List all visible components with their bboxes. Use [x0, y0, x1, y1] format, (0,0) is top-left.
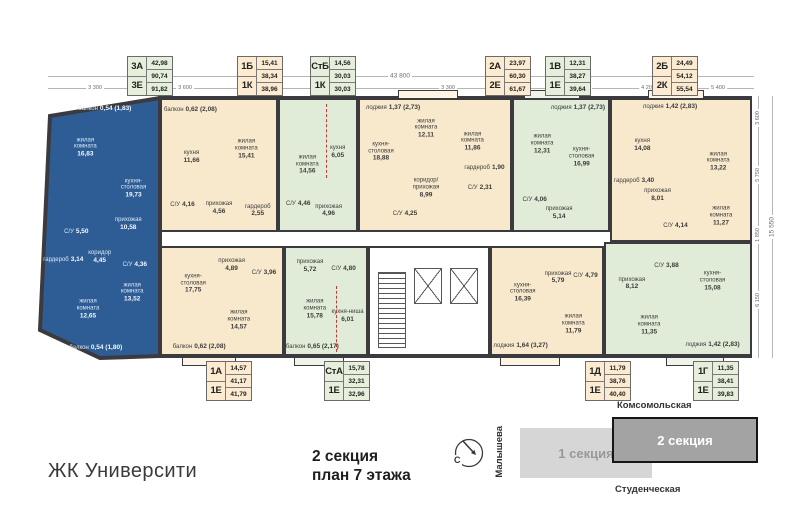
apartment-area-value: 41,79: [226, 387, 251, 400]
room-label: жилая комната11,35: [631, 315, 667, 336]
room-name: С/У: [573, 273, 583, 280]
room-area: 17,75: [185, 287, 201, 294]
apartment-area-value: 24,49: [672, 57, 697, 69]
room-area: 11,86: [465, 145, 481, 152]
room-area: 14,56: [299, 168, 315, 175]
room-name: прихожая: [115, 217, 142, 224]
room-label: С/У3,96: [252, 270, 276, 278]
elevator-icon: [414, 268, 442, 304]
apartment-area-value: 32,31: [344, 374, 369, 387]
apartment-type-label: СтА: [325, 362, 343, 381]
room-label: прихожая5,79: [545, 271, 572, 285]
room-label: прихожая5,72: [297, 259, 324, 273]
apartment-type: 3А3Е: [128, 57, 147, 95]
room-area: 0,65 (2,17): [307, 343, 338, 350]
apartment-area-value: 14,57: [226, 362, 251, 374]
room-name: балкон: [164, 108, 183, 115]
room-name: жилая комната: [221, 310, 257, 323]
apartment-area-value: 32,96: [344, 387, 369, 400]
room-name: лоджия: [685, 342, 706, 349]
room-area: 3,96: [264, 270, 277, 277]
room-name: жилая комната: [700, 151, 736, 164]
apartment-areas: 11,3538,4139,83: [713, 362, 738, 400]
apartment-areas: 15,4138,3438,96: [257, 57, 282, 95]
apartment-areas: 24,4954,1255,54: [672, 57, 697, 95]
apartment-type-label: 2А: [486, 57, 504, 76]
room-area: 0,62 (2,08): [186, 107, 217, 114]
room-area: 5,14: [553, 213, 566, 220]
room-name: прихожая: [297, 259, 324, 266]
room-name: кухня-столовая: [116, 178, 152, 191]
room-label: кухня-столовая19,73: [116, 178, 152, 199]
room-area: 1,37 (2,73): [389, 104, 420, 111]
room-area: 11,27: [713, 219, 729, 226]
apartment-card-1V[interactable]: 1В1Е12,3138,2739,64: [545, 56, 591, 96]
apartment-areas: 12,3138,2739,64: [565, 57, 590, 95]
room-area: 16,99: [574, 160, 590, 167]
apartment-area-value: 38,76: [605, 374, 630, 387]
apartment-type-label: 1Г: [694, 362, 712, 381]
room-label: прихожая4,96: [315, 204, 342, 218]
dimension-label: 3 600: [176, 85, 194, 91]
room-label: С/У3,88: [654, 262, 678, 270]
room-area: 4,56: [213, 208, 226, 215]
room-label: жилая комната15,78: [297, 299, 333, 320]
room-area: 15,78: [307, 313, 323, 320]
apartment-areas: 14,5630,0330,03: [330, 57, 355, 95]
apartment-type: 1Д1Е: [586, 362, 605, 400]
room-label: жилая комната13,22: [700, 151, 736, 172]
room-area: 0,54 (1,80): [91, 344, 122, 351]
room-label: балкон0,54 (1,80): [69, 344, 122, 352]
room-area: 4,96: [322, 210, 335, 217]
apartment-1D[interactable]: кухня-столовая16,39прихожая5,79С/У4,79жи…: [490, 246, 604, 356]
apartment-type-label: 1Е: [694, 381, 712, 401]
room-label: прихожая4,56: [206, 201, 233, 215]
room-area: 3,40: [642, 177, 655, 184]
location-map: Комсомольская 1 секция 2 секция Студенче…: [450, 398, 762, 516]
room-name: кухня-столовая: [505, 282, 541, 295]
room-area: 4,06: [534, 196, 547, 203]
compass-north-icon: С: [450, 434, 488, 472]
room-label: кухня-столовая17,75: [175, 274, 211, 295]
room-label: С/У4,79: [573, 272, 597, 280]
apartment-card-1D[interactable]: 1Д1Е11,7938,7640,40: [585, 361, 631, 401]
room-label: коридор/прихожая8,99: [408, 178, 444, 199]
room-label: прихожая5,14: [546, 206, 573, 220]
dimension-label: 6 150: [755, 291, 761, 309]
room-name: жилая комната: [297, 299, 333, 312]
room-label: кухня-столовая15,08: [695, 271, 731, 292]
room-area: 13,22: [710, 165, 726, 172]
room-label: С/У4,25: [393, 211, 417, 219]
apartment-StA[interactable]: прихожая5,72С/У4,80жилая комната15,78кух…: [284, 246, 368, 356]
room-name: прихожая: [546, 206, 573, 213]
room-label: жилая комната11,79: [555, 314, 591, 335]
room-label: кухня-столовая16,99: [564, 147, 600, 168]
room-label: жилая комната15,41: [228, 139, 264, 160]
apartment-card-StA[interactable]: СтА1Е15,7832,3132,96: [324, 361, 370, 401]
room-name: жилая комната: [524, 134, 560, 147]
room-label: С/У4,06: [522, 196, 546, 204]
apartment-area-value: 40,40: [605, 387, 630, 400]
room-label: прихожая4,89: [218, 258, 245, 272]
apartment-area-value: 41,17: [226, 374, 251, 387]
apartment-area-value: 38,27: [565, 69, 590, 82]
apartment-type-label: СтБ: [311, 57, 329, 76]
apartment-type-label: 1А: [207, 362, 225, 381]
apartment-area-value: 54,12: [672, 69, 697, 82]
room-name: кухня-столовая: [564, 147, 600, 160]
room-label: балкон0,65 (2,17): [286, 343, 339, 351]
room-area: 13,52: [124, 296, 140, 303]
room-area: 2,31: [480, 185, 493, 192]
room-name: С/У: [286, 201, 296, 208]
apartment-type-label: 2К: [653, 76, 671, 96]
apartment-area-value: 61,67: [505, 82, 530, 95]
stairs-icon: [378, 272, 406, 348]
room-name: С/У: [331, 266, 341, 273]
room-label: С/У5,50: [64, 229, 88, 237]
room-name: жилая комната: [67, 137, 103, 150]
apartment-1V[interactable]: лоджия1,37 (2,73)жилая комната12,31кухня…: [512, 98, 610, 232]
room-area: 3,88: [666, 262, 679, 269]
apartment-areas: 15,7832,3132,96: [344, 362, 369, 400]
room-label: кухня-столовая16,39: [505, 282, 541, 303]
room-label: жилая комната12,11: [408, 118, 444, 139]
room-name: жилая комната: [555, 314, 591, 327]
room-label: гардероб3,14: [43, 256, 83, 264]
apartment-StB[interactable]: жилая комната14,56кухня6,05С/У4,46прихож…: [278, 98, 358, 232]
room-name: С/У: [64, 230, 74, 237]
room-area: 10,58: [120, 224, 136, 231]
room-area: 5,79: [552, 277, 565, 284]
dimension-label: 43 800: [388, 73, 412, 80]
room-name: С/У: [252, 271, 262, 278]
apartment-card-StB[interactable]: СтБ1К14,5630,0330,03: [310, 56, 356, 96]
room-area: 11,35: [641, 328, 657, 335]
room-name: жилая комната: [289, 155, 325, 168]
room-name: жилая комната: [703, 206, 739, 219]
room-name: жилая комната: [408, 118, 444, 131]
apartment-type: 1Г1Е: [694, 362, 713, 400]
floor-plan-page: 43 8003 3003 6003 6006 0003 3002 5003 30…: [0, 0, 800, 520]
plan-title: 2 секция план 7 этажа: [312, 447, 411, 486]
room-name: балкон: [173, 344, 192, 351]
compass-north-label: С: [453, 455, 462, 465]
section-2-block[interactable]: 2 секция: [612, 417, 758, 463]
room-area: 1,37 (2,73): [574, 104, 605, 111]
room-name: С/У: [170, 202, 180, 209]
apartment-area-value: 60,30: [505, 69, 530, 82]
room-area: 3,14: [71, 256, 84, 263]
room-label: лоджия1,42 (2,83): [685, 341, 739, 349]
room-label: кухня11,66: [184, 150, 200, 164]
room-area: 1,90: [492, 164, 505, 171]
room-label: жилая комната16,83: [67, 137, 103, 158]
apartment-area-value: 39,64: [565, 82, 590, 95]
room-area: 0,54 (1,83): [100, 105, 131, 112]
apartment-area-value: 15,41: [257, 57, 282, 69]
room-area: 2,55: [251, 210, 264, 217]
room-area: 11,79: [565, 327, 581, 334]
room-label: жилая комната13,52: [114, 282, 150, 303]
room-area: 4,46: [298, 200, 311, 207]
apartment-area-value: 23,97: [505, 57, 530, 69]
room-label: С/У4,80: [331, 265, 355, 273]
room-label: жилая комната11,86: [455, 131, 491, 152]
room-name: коридор: [88, 250, 111, 257]
room-label: лоджия1,37 (2,73): [551, 104, 605, 112]
room-area: 19,73: [125, 192, 141, 199]
apartment-1G[interactable]: прихожая8,12С/У3,88кухня-столовая15,08жи…: [604, 242, 752, 356]
room-name: гардероб: [614, 178, 640, 185]
room-name: жилая комната: [455, 131, 491, 144]
room-name: гардероб: [245, 204, 271, 211]
room-label: жилая комната12,65: [70, 299, 106, 320]
apartment-type: 1А1Е: [207, 362, 226, 400]
apartment-area-value: 15,78: [344, 362, 369, 374]
apartment-card-1A[interactable]: 1А1Е14,5741,1741,79: [206, 361, 252, 401]
apartment-3E[interactable]: балкон0,54 (1,83)жилая комната16,83кухня…: [36, 90, 166, 364]
room-label: коридор4,45: [88, 250, 111, 264]
apartment-type-label: 3Е: [128, 76, 146, 96]
apartment-area-value: 11,79: [605, 362, 630, 374]
apartment-type-label: 1К: [238, 76, 256, 96]
room-name: балкон: [69, 345, 88, 352]
room-name: кухня-столовая: [175, 274, 211, 287]
room-area: 11,66: [184, 157, 200, 164]
room-name: кухня-столовая: [695, 271, 731, 284]
room-label: гардероб1,90: [464, 164, 504, 172]
apartment-area-value: 14,56: [330, 57, 355, 69]
room-name: С/У: [654, 263, 664, 270]
room-area: 5,72: [304, 266, 317, 273]
kitchen-niche-line: [326, 104, 327, 178]
room-label: лоджия1,64 (3,27): [493, 342, 547, 350]
room-name: С/У: [522, 197, 532, 204]
room-name: гардероб: [43, 257, 69, 264]
complex-name: ЖК Университи: [48, 460, 197, 483]
room-label: С/У4,46: [286, 200, 310, 208]
room-area: 16,39: [515, 296, 531, 303]
room-area: 1,42 (2,83): [666, 103, 697, 110]
room-name: прихожая: [315, 204, 342, 211]
room-area: 6,01: [341, 316, 354, 323]
room-area: 4,16: [182, 201, 195, 208]
apartment-1B[interactable]: балкон0,62 (2,08)кухня11,66жилая комната…: [160, 98, 278, 232]
room-area: 5,50: [76, 229, 89, 236]
room-area: 4,80: [343, 265, 356, 272]
room-label: кухня-столовая18,88: [363, 142, 399, 163]
dimension-label: 5 400: [709, 85, 727, 91]
room-name: С/У: [468, 186, 478, 193]
room-name: лоджия: [493, 343, 514, 350]
apartment-card-1G[interactable]: 1Г1Е11,3538,4139,83: [693, 361, 739, 401]
room-name: прихожая: [619, 277, 646, 284]
apartment-card-2B[interactable]: 2Б2К24,4954,1255,54: [652, 56, 698, 96]
apartment-areas: 23,9760,3061,67: [505, 57, 530, 95]
room-name: прихожая: [644, 188, 671, 195]
room-name: жилая комната: [228, 139, 264, 152]
room-label: лоджия1,37 (2,73): [366, 104, 420, 112]
room-name: кухня-столовая: [363, 142, 399, 155]
room-label: С/У4,16: [170, 201, 194, 209]
room-area: 16,83: [77, 151, 93, 158]
room-name: прихожая: [545, 271, 572, 278]
room-area: 4,14: [675, 222, 688, 229]
apartment-area-value: 30,03: [330, 69, 355, 82]
apartment-areas: 42,9890,7491,82: [147, 57, 172, 95]
room-name: прихожая: [206, 201, 233, 208]
room-name: прихожая: [218, 258, 245, 265]
street-komsomolskaya: Комсомольская: [617, 400, 692, 411]
room-area: 4,36: [134, 262, 147, 269]
room-name: С/У: [393, 212, 403, 219]
room-area: 6,05: [331, 152, 344, 159]
apartment-1A[interactable]: кухня-столовая17,75прихожая4,89С/У3,96жи…: [160, 246, 284, 356]
room-area: 4,79: [585, 272, 598, 279]
room-area: 14,08: [634, 145, 650, 152]
apartment-card-1B[interactable]: 1Б1К15,4138,3438,96: [237, 56, 283, 96]
room-name: кухня: [184, 150, 199, 157]
room-label: жилая комната11,27: [703, 206, 739, 227]
room-area: 1,42 (2,83): [708, 341, 739, 348]
apartment-type: 2А2Е: [486, 57, 505, 95]
apartment-type: 2Б2К: [653, 57, 672, 95]
room-name: кухня: [330, 145, 345, 152]
apartment-area-value: 55,54: [672, 82, 697, 95]
room-name: коридор/прихожая: [408, 178, 444, 191]
street-malysheva: Малышева: [494, 426, 505, 478]
room-area: 0,62 (2,08): [194, 343, 225, 350]
apartment-type: 1Б1К: [238, 57, 257, 95]
room-label: жилая комната14,56: [289, 155, 325, 176]
apartment-area-value: 42,98: [147, 57, 172, 69]
room-label: прихожая10,58: [115, 217, 142, 231]
room-area: 8,01: [651, 195, 664, 202]
room-label: С/У4,14: [663, 222, 687, 230]
apartment-areas: 14,5741,1741,79: [226, 362, 251, 400]
apartment-type-label: 2Б: [653, 57, 671, 76]
room-label: С/У4,36: [123, 262, 147, 270]
room-name: балкон: [286, 344, 305, 351]
apartment-card-3A[interactable]: 3А3Е42,9890,7491,82: [127, 56, 173, 96]
apartment-areas: 11,7938,7640,40: [605, 362, 630, 400]
room-area: 8,12: [626, 283, 639, 290]
room-label: кухня6,05: [330, 145, 345, 159]
apartment-shape: [36, 90, 166, 364]
apartment-area-value: 12,31: [565, 57, 590, 69]
room-label: балкон0,62 (2,08): [173, 343, 226, 351]
room-name: жилая комната: [114, 282, 150, 295]
apartment-area-value: 38,96: [257, 82, 282, 95]
room-label: гардероб2,55: [245, 204, 271, 218]
apartment-2B[interactable]: лоджия1,42 (2,83)кухня14,08жилая комната…: [610, 98, 752, 242]
apartment-type-label: 1Е: [586, 381, 604, 401]
apartment-area-value: 91,82: [147, 82, 172, 95]
room-name: балкон: [78, 106, 97, 113]
room-name: жилая комната: [70, 299, 106, 312]
apartment-type-label: 3А: [128, 57, 146, 76]
apartment-type-label: 1К: [311, 76, 329, 96]
plan-title-floor: план 7 этажа: [312, 466, 411, 485]
dimension-label: 15 550: [769, 215, 776, 239]
apartment-type: СтА1Е: [325, 362, 344, 400]
room-label: прихожая8,01: [644, 188, 671, 202]
room-area: 12,31: [534, 147, 550, 154]
apartment-area-value: 39,83: [713, 387, 738, 400]
room-area: 15,41: [238, 152, 254, 159]
apartment-area-value: 38,41: [713, 374, 738, 387]
apartment-type-label: 1В: [546, 57, 564, 76]
dimension-label: 3 600: [755, 109, 761, 127]
apartment-area-value: 90,74: [147, 69, 172, 82]
room-area: 15,08: [704, 284, 720, 291]
room-name: лоджия: [551, 105, 572, 112]
room-label: гардероб3,40: [614, 177, 654, 185]
room-area: 12,65: [80, 312, 96, 319]
room-label: кухня14,08: [634, 138, 650, 152]
room-area: 12,11: [418, 132, 434, 139]
room-label: жилая комната12,31: [524, 134, 560, 155]
apartment-area-value: 11,35: [713, 362, 738, 374]
room-name: кухня: [635, 138, 650, 145]
apartment-type-label: 1Е: [207, 381, 225, 401]
room-name: лоджия: [366, 105, 387, 112]
street-studencheskaya: Студенческая: [615, 484, 680, 495]
apartment-type-label: 2Е: [486, 76, 504, 96]
room-label: жилая комната14,57: [221, 310, 257, 331]
kitchen-niche-line: [336, 286, 337, 352]
room-name: С/У: [663, 223, 673, 230]
room-name: С/У: [123, 263, 133, 270]
room-area: 14,57: [231, 323, 247, 330]
apartment-type: 1В1Е: [546, 57, 565, 95]
apartment-card-2A[interactable]: 2А2Е23,9760,3061,67: [485, 56, 531, 96]
apartment-area-value: 38,34: [257, 69, 282, 82]
apartment-type: СтБ1К: [311, 57, 330, 95]
apartment-type-label: 1Е: [546, 76, 564, 96]
room-label: балкон0,62 (2,08): [164, 107, 217, 115]
room-label: лоджия1,42 (2,83): [643, 103, 697, 111]
room-area: 1,64 (3,27): [516, 342, 547, 349]
dimension-label: 5 750: [755, 166, 761, 184]
room-area: 4,45: [93, 257, 106, 264]
room-label: балкон0,54 (1,83): [78, 105, 131, 113]
room-area: 18,88: [373, 155, 389, 162]
room-area: 8,99: [420, 191, 433, 198]
stair-core: [368, 246, 490, 356]
plan-title-section: 2 секция: [312, 447, 411, 466]
room-name: лоджия: [643, 104, 664, 111]
room-name: жилая комната: [631, 315, 667, 328]
balcony-strip: [500, 357, 560, 366]
apartment-2A[interactable]: лоджия1,37 (2,73)кухня-столовая18,88жила…: [358, 98, 512, 232]
apartment-type-label: 1Б: [238, 57, 256, 76]
room-area: 4,89: [225, 265, 238, 272]
room-label: С/У2,31: [468, 185, 492, 193]
dimension-label: 1 850: [755, 226, 761, 244]
room-name: гардероб: [464, 165, 490, 172]
elevator-icon: [450, 268, 478, 304]
room-area: 4,25: [405, 211, 418, 218]
apartment-area-value: 30,03: [330, 82, 355, 95]
room-label: прихожая8,12: [619, 277, 646, 291]
apartment-type-label: 1Е: [325, 381, 343, 401]
apartment-type-label: 1Д: [586, 362, 604, 381]
